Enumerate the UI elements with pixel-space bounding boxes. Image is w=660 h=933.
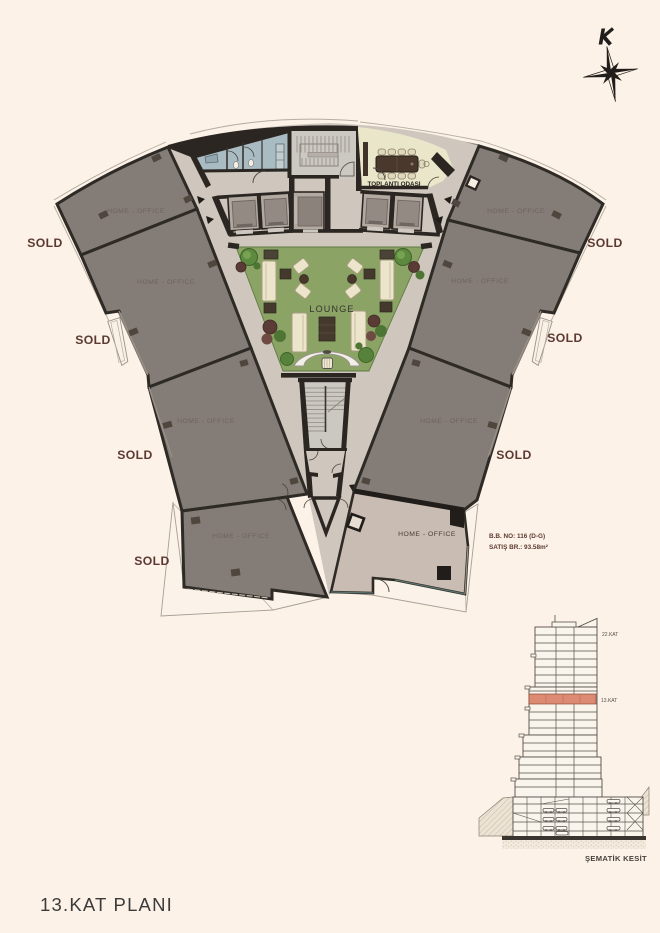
svg-text:HOME - OFFICE: HOME - OFFICE [212,533,270,540]
svg-text:SOLD: SOLD [547,331,582,345]
svg-text:LOUNGE: LOUNGE [309,304,354,314]
svg-text:SOLD: SOLD [496,448,531,462]
svg-text:SOLD: SOLD [117,448,152,462]
svg-text:SOLD: SOLD [134,554,169,568]
svg-text:13.KAT PLANI: 13.KAT PLANI [40,894,173,915]
svg-text:ŞEMATİK KESİT: ŞEMATİK KESİT [585,854,647,863]
svg-text:22.KAT: 22.KAT [602,632,618,638]
svg-text:HOME - OFFICE: HOME - OFFICE [451,278,509,285]
svg-text:HOME - OFFICE: HOME - OFFICE [420,418,478,425]
svg-text:13.KAT: 13.KAT [601,698,617,704]
svg-text:SOLD: SOLD [75,333,110,347]
svg-text:HOME - OFFICE: HOME - OFFICE [137,279,195,286]
svg-text:HOME - OFFICE: HOME - OFFICE [487,208,545,215]
svg-text:B.B. NO: 116 (D-G): B.B. NO: 116 (D-G) [489,533,545,540]
svg-text:HOME - OFFICE: HOME - OFFICE [177,418,235,425]
svg-text:HOME - OFFICE: HOME - OFFICE [107,208,165,215]
svg-text:SOLD: SOLD [27,236,62,250]
svg-text:SOLD: SOLD [587,236,622,250]
svg-text:HOME - OFFICE: HOME - OFFICE [398,531,456,538]
svg-text:TOPLANTI ODASI: TOPLANTI ODASI [367,181,420,188]
svg-text:SATIŞ BR.: 93.58m²: SATIŞ BR.: 93.58m² [489,544,548,551]
